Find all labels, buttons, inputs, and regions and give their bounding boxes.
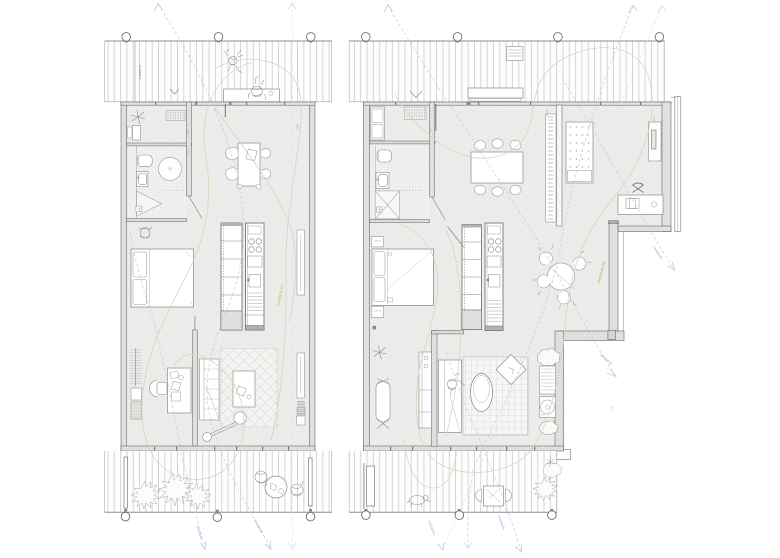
svg-text:2,9: 2,9 bbox=[428, 128, 432, 133]
svg-text:1,6: 1,6 bbox=[610, 405, 614, 410]
svg-text:6,5: 6,5 bbox=[186, 150, 190, 155]
svg-text:7,05: 7,05 bbox=[296, 124, 300, 130]
svg-text:14,6: 14,6 bbox=[545, 110, 549, 116]
svg-text:2,9: 2,9 bbox=[186, 130, 190, 135]
svg-text:Lavadero: Lavadero bbox=[138, 65, 142, 79]
